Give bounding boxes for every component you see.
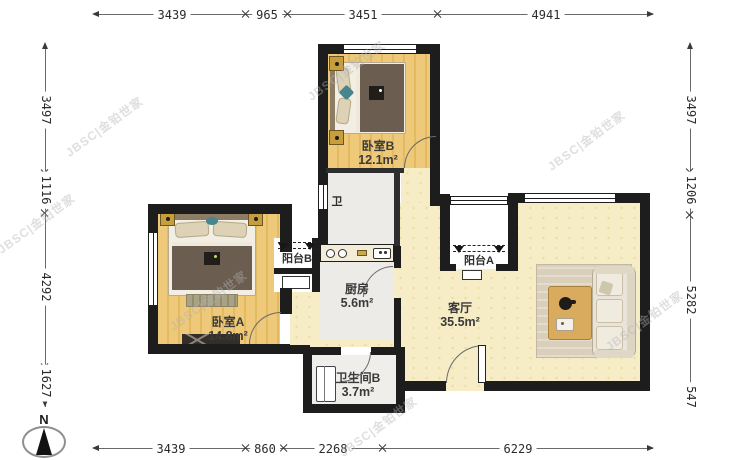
room-area: 35.5m² (415, 315, 505, 329)
dim-value: 547 (684, 382, 698, 412)
balcony-b-arrow-right (305, 243, 315, 250)
bedroom-b-label: 卧室B 12.1m² (332, 140, 424, 167)
dim-value: 3439 (153, 442, 190, 456)
watermark: JBSC|金铂世家 (544, 106, 629, 174)
kitchen-label: 厨房 5.6m² (315, 283, 399, 310)
bed-b-tray (369, 86, 384, 100)
room-name: 厨房 (315, 283, 399, 296)
dim-arrow-left (92, 11, 99, 17)
stove-burner-1 (326, 249, 335, 258)
balcony-a-sill (462, 270, 482, 280)
window-balcony-a (450, 196, 508, 205)
dim-arrow-left (92, 445, 99, 451)
dim-arrow-up (687, 42, 693, 49)
cutting-board (357, 250, 367, 256)
wall (148, 344, 290, 354)
room-area: 14.8m² (168, 329, 288, 343)
wall (280, 288, 292, 314)
sofa-cushion-2 (596, 299, 623, 323)
bed-a-tray (204, 252, 220, 265)
wall (484, 381, 650, 391)
dim-tick (433, 9, 443, 19)
wall (303, 347, 341, 355)
dim-value: 3497 (684, 92, 698, 129)
room-name: 卧室B (332, 140, 424, 153)
room-area: 3.7m² (316, 385, 400, 399)
partition-wall (394, 168, 400, 246)
dim-tick (241, 9, 251, 19)
balcony-a-arrow-left (454, 246, 464, 253)
dim-value: 1627 (39, 365, 53, 402)
compass-needle-icon (36, 428, 52, 455)
dim-arrow-right (647, 11, 654, 17)
wall (371, 347, 405, 355)
window-living (524, 193, 616, 203)
wall (640, 193, 650, 391)
dim-value: 965 (252, 8, 282, 22)
room-area: 5.6m² (315, 296, 399, 310)
balcony-a-arrow-right (494, 246, 504, 253)
compass-north-label: N (16, 412, 72, 427)
balcony-b-arrow-left (278, 243, 288, 250)
partition-wall (326, 168, 404, 173)
dim-arrow-up (42, 42, 48, 49)
wall (394, 246, 401, 268)
dim-tick (283, 9, 293, 19)
sink-faucet-2 (384, 251, 387, 254)
dim-value: 860 (250, 442, 280, 456)
coffee-table (548, 286, 592, 340)
stove-burner-2 (338, 249, 347, 258)
wall (430, 44, 440, 206)
wall (148, 204, 290, 214)
table-tray-dot (561, 322, 564, 325)
watermark: JBSC|金铂世家 (62, 92, 147, 160)
room-area: 12.1m² (332, 153, 424, 167)
bed-a-pillow-1 (175, 221, 210, 238)
dim-tick (279, 443, 289, 453)
balcony-b-label: 阳台B (276, 253, 318, 265)
bathroom-a-label: 卫 (326, 196, 348, 208)
bathroom-a-floor (326, 173, 394, 244)
hallway-floor-2 (320, 340, 394, 347)
room-name: 客厅 (415, 302, 505, 315)
dim-value: 3451 (345, 8, 382, 22)
dim-value: 4941 (528, 8, 565, 22)
bed-a-tray-dot (214, 255, 217, 258)
room-name: 卫生间B (316, 372, 400, 385)
dim-value: 3497 (39, 92, 53, 129)
living-room-label: 客厅 35.5m² (415, 302, 505, 329)
dim-tick (378, 443, 388, 453)
bathroom-b-label: 卫生间B 3.7m² (316, 372, 400, 399)
dim-tick (685, 210, 695, 220)
balcony-a-label: 阳台A (448, 255, 510, 267)
corridor-floor (401, 168, 430, 203)
sink-faucet (379, 251, 382, 254)
window-bedroom-a (148, 232, 158, 306)
dim-value: 4292 (39, 269, 53, 306)
sofa-armrest-top (594, 266, 634, 274)
wall (400, 381, 446, 391)
dim-value: 1206 (684, 172, 698, 209)
bed-b-tray-dot (379, 89, 382, 92)
dim-value: 3439 (154, 8, 191, 22)
table-tray (556, 318, 574, 331)
dim-value: 6229 (500, 442, 537, 456)
bed-a-accent (206, 217, 218, 225)
sink (373, 248, 391, 259)
bed-a-pillow-2 (213, 221, 248, 238)
dim-arrow-right (647, 445, 654, 451)
compass: N (16, 410, 72, 460)
teapot-spout (570, 300, 576, 304)
floor-plan-canvas: 阳台B 阳台A 卧室B 12 (0, 0, 746, 460)
entrance-door-leaf (478, 345, 486, 383)
